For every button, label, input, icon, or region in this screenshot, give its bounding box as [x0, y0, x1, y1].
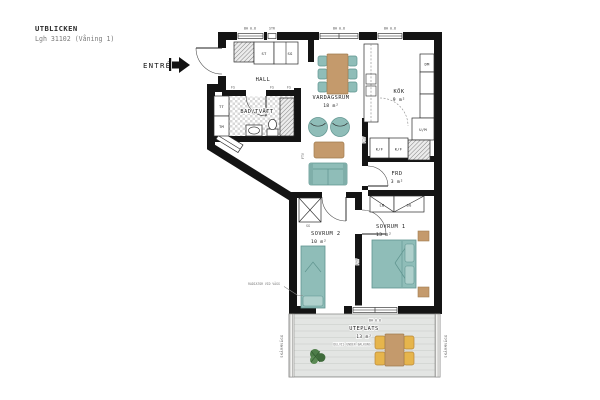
- screen-wall-right: [435, 314, 440, 377]
- bedroom2-furniture: SG: [299, 198, 325, 308]
- patio-note: DELVIS UNDER BALKONG: [333, 343, 370, 347]
- kitchen-shaft: [408, 140, 430, 160]
- bed-1-pillow-1: [405, 244, 414, 262]
- bedroom2-label: SOVRUM 2: [311, 231, 341, 237]
- dryer-label: TT: [219, 104, 224, 109]
- bh-label-3: BH 0.8: [384, 27, 396, 31]
- fridge-freezer-2-label: K/F: [395, 147, 403, 152]
- window-kitchen: [377, 32, 403, 41]
- hall-shaft: [234, 42, 254, 62]
- counter-cell-1: [420, 72, 434, 94]
- closet-lb-label: LB: [380, 203, 385, 208]
- window-bedroom1: [352, 306, 398, 315]
- shower: [280, 98, 294, 136]
- patio-area: 13 m²: [356, 334, 372, 340]
- bedroom2-wardrobe-label: SG: [306, 224, 310, 228]
- fs-label-2: FS: [270, 86, 274, 90]
- kitchen-area: 9 m²: [393, 97, 406, 103]
- living-area: 18 m²: [323, 103, 339, 109]
- washbasin: [246, 125, 262, 136]
- kitchen-label: KÖK: [393, 88, 404, 95]
- entry-arrow-tail: [169, 58, 171, 71]
- bedroom1-closet-lb: LB: [370, 196, 394, 212]
- apartment-subtitle: Lgh 31102 (Våning 1): [35, 34, 114, 43]
- closet-sg-label: SG: [407, 203, 412, 208]
- dishwasher-label: DM: [425, 62, 430, 67]
- storage-label: FRD: [391, 171, 402, 177]
- entry-callout: ENTRÉ: [143, 57, 190, 73]
- patio-label: UTEPLATS: [349, 326, 379, 332]
- entry-label: ENTRÉ: [143, 61, 171, 70]
- floorplan-drawing: UTBLICKEN Lgh 31102 (Våning 1) ENTRÉ: [0, 0, 600, 400]
- bed-1-pillow-2: [405, 266, 414, 284]
- bed-2: [301, 246, 325, 308]
- bh-label-4: BH 0.8: [369, 319, 381, 323]
- window-hall: [237, 32, 264, 41]
- screen-wall-right-label: SKÄRMVÄGG: [443, 334, 448, 357]
- entry-door: [196, 48, 228, 76]
- coffee-table: [314, 142, 344, 158]
- entry-arrow-icon: [172, 57, 190, 73]
- window-living: [319, 32, 359, 41]
- screen-wall-left: [289, 314, 294, 377]
- title-block: UTBLICKEN Lgh 31102 (Våning 1): [35, 24, 114, 43]
- armchair-1: [309, 118, 328, 137]
- bed-1: [372, 240, 416, 288]
- nightstand-2: [418, 287, 429, 297]
- screen-wall-left-label: SKÄRMVÄGG: [279, 334, 284, 357]
- ftv-label-2: FTV: [362, 137, 366, 143]
- storage-area: 3 m²: [391, 179, 404, 185]
- ftv-label-1: FTV: [301, 153, 305, 159]
- stairwell-label: STR: [269, 27, 275, 31]
- nightstand-1: [418, 231, 429, 241]
- bathroom-label: BAD/TVÄTT: [240, 108, 274, 115]
- dining-table: [327, 54, 348, 94]
- bh-label-1: BH 0.8: [244, 27, 256, 31]
- patio-table: [385, 334, 404, 366]
- floorplan-page: UTBLICKEN Lgh 31102 (Våning 1) ENTRÉ: [0, 0, 600, 400]
- living-label: VARDAGSRUM: [313, 95, 350, 101]
- bedroom1-closet-sg: SG: [394, 196, 424, 212]
- wardrobe-label: SG: [288, 51, 293, 56]
- bedroom2-area: 10 m²: [311, 239, 327, 245]
- bed-2-pillow: [303, 296, 323, 306]
- cleaning-closet-label: ST: [262, 51, 267, 56]
- hall-label: HALL: [256, 77, 271, 83]
- stairwell-slot: [267, 32, 277, 41]
- fs-label-3: FS: [287, 86, 291, 90]
- fridge-freezer-1-label: K/F: [376, 147, 384, 152]
- bedroom1-area: 13 m²: [376, 232, 392, 238]
- fs-label-1: FS: [231, 86, 235, 90]
- ftv-label-3: FTV: [356, 259, 360, 265]
- sofa: [309, 163, 347, 185]
- counter-cell-2: [420, 94, 434, 118]
- bh-label-2: BH 0.8: [333, 27, 345, 31]
- armchair-2: [331, 118, 350, 137]
- bedroom1-label: SOVRUM 1: [376, 224, 406, 230]
- washer-label: TM: [219, 124, 224, 129]
- oven-microwave-label: U/M: [419, 127, 427, 132]
- project-title: UTBLICKEN: [35, 24, 78, 33]
- hall-fixtures: ST SG: [234, 42, 298, 64]
- radiator-note: RADIATOR VID VÄGG: [248, 281, 280, 286]
